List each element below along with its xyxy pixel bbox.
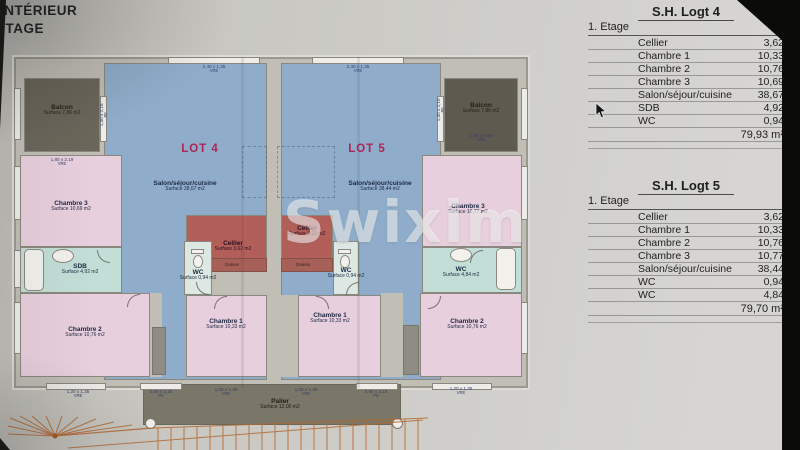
room-surface: Surface 10,69 m2 bbox=[51, 207, 90, 213]
room-label-wc-lot4: WC Surface 0,94 m2 bbox=[180, 269, 217, 282]
table-end-rule bbox=[588, 316, 784, 323]
lot5-title: LOT 5 bbox=[348, 143, 386, 155]
duct-shaft-lot4 bbox=[152, 327, 166, 375]
room-surface: Surface 3,62 m2 bbox=[215, 247, 252, 253]
table-row: Chambre 110,33 bbox=[588, 50, 784, 63]
room-label-chambre1-lot4: Chambre 1 Surface 10,33 m2 bbox=[206, 318, 245, 331]
window-opening bbox=[521, 302, 528, 354]
table-row: SDB4,92 bbox=[588, 102, 784, 115]
window-opening bbox=[14, 302, 21, 354]
dimension-label: 0,90 x 2,15PE bbox=[356, 389, 396, 399]
room-surface: Surface 4,84 m2 bbox=[443, 273, 480, 279]
wall-strip bbox=[281, 295, 298, 377]
table-row: Chambre 310,69 bbox=[588, 76, 784, 89]
room-label-sdb-lot4: SDB Surface 4,92 m2 bbox=[62, 263, 99, 276]
photo-corner-shadow bbox=[0, 0, 6, 130]
table-floor-row: 1. Etage bbox=[588, 195, 784, 210]
room-surface: Surface 10,33 m2 bbox=[310, 319, 349, 325]
table-row: Chambre 210,76 bbox=[588, 63, 784, 76]
room-label-chambre1-lot5: Chambre 1 Surface 10,33 m2 bbox=[310, 312, 349, 325]
sink-symbol bbox=[52, 249, 74, 263]
room-label-wc-bathroom-lot5: WC Surface 4,84 m2 bbox=[443, 266, 480, 279]
dimension-label: 1,20 x 1,35VRE bbox=[441, 386, 481, 396]
room-label-palier: Palier Surface 12,00 m2 bbox=[260, 398, 299, 411]
room-label-balcon-lot4: Balcon Surface 7,86 m2 bbox=[44, 104, 81, 117]
table-row: Chambre 210,76 bbox=[588, 237, 784, 250]
table-total-row: 79,93 m² bbox=[588, 128, 784, 142]
swixim-watermark: Swixim bbox=[283, 188, 528, 256]
dimension-label: 0,90 x 2,15PE bbox=[141, 389, 181, 399]
window-opening bbox=[168, 57, 260, 64]
dimension-label: 1,20 x 1,35VRE bbox=[58, 389, 98, 399]
room-surface: Surface 10,76 m2 bbox=[447, 325, 486, 331]
room-chambre1-lot5 bbox=[298, 295, 381, 377]
dimension-label: 1,20 x 1,35VRE bbox=[206, 387, 246, 397]
room-surface: Surface 4,92 m2 bbox=[62, 270, 99, 276]
window-opening bbox=[521, 88, 528, 140]
table-row: WC0,94 bbox=[588, 115, 784, 128]
table-row: Salon/séjour/cuisine38,67 bbox=[588, 89, 784, 102]
table-row: Salon/séjour/cuisine38,44 bbox=[588, 263, 784, 276]
gaines-label: Gaines bbox=[225, 262, 239, 267]
table-end-rule bbox=[588, 142, 784, 149]
table-total-row: 79,70 m² bbox=[588, 302, 784, 316]
room-surface: Surface 0,94 m2 bbox=[180, 276, 217, 282]
room-label-chambre2-lot5: Chambre 2 Surface 10,76 m2 bbox=[447, 318, 486, 331]
bathtub-symbol bbox=[24, 249, 44, 291]
photo-edge-band bbox=[782, 0, 800, 450]
window-opening bbox=[14, 166, 21, 220]
page-title-line2: ÉTAGE bbox=[0, 21, 44, 36]
corridor-patch-lot4 bbox=[212, 272, 267, 295]
room-surface: Surface 10,76 m2 bbox=[65, 333, 104, 339]
toilet-tank-symbol bbox=[191, 249, 204, 254]
table-floor-row: 1. Etage bbox=[588, 21, 784, 36]
table-row: Chambre 310,77 bbox=[588, 250, 784, 263]
table-row: Chambre 110,33 bbox=[588, 224, 784, 237]
room-label-chambre3-lot4: Chambre 3 Surface 10,69 m2 bbox=[51, 200, 90, 213]
stair-newel-post bbox=[53, 434, 58, 439]
room-surface: Surface 7,86 m2 bbox=[44, 111, 81, 117]
photo-crease-artifact bbox=[241, 57, 244, 388]
table-row: Cellier3,62 bbox=[588, 211, 784, 224]
surface-table-logt4: S.H. Logt 4 1. Etage Cellier3,62 Chambre… bbox=[588, 4, 784, 149]
lot4-title: LOT 4 bbox=[181, 143, 219, 155]
room-label-cellier-lot4: Cellier Surface 3,62 m2 bbox=[215, 240, 252, 253]
mouse-cursor-icon bbox=[595, 102, 607, 120]
window-opening bbox=[14, 250, 21, 288]
photographed-floor-plan-page: INTÉRIEUR ÉTAGE bbox=[0, 0, 800, 450]
window-opening bbox=[14, 88, 21, 140]
dimension-label: 1,00 x 0,95VRE bbox=[461, 133, 501, 143]
page-title-line1: INTÉRIEUR bbox=[0, 3, 77, 18]
room-label-chambre2-lot4: Chambre 2 Surface 10,76 m2 bbox=[65, 326, 104, 339]
room-surface: Surface 38,67 m2 bbox=[153, 187, 216, 193]
duct-shaft-lot5 bbox=[403, 325, 419, 375]
dimension-label: 1,80 x 2,19VRE bbox=[42, 157, 82, 167]
room-surface: Surface 10,33 m2 bbox=[206, 325, 245, 331]
table-row: WC4,84 bbox=[588, 289, 784, 302]
dimension-label: 2,40 x 1,35VRE bbox=[194, 64, 234, 74]
dimension-label: 1,40 x 2,15PF bbox=[436, 90, 446, 130]
gaines-label: Gaines bbox=[296, 262, 310, 267]
surface-table-logt5: S.H. Logt 5 1. Etage Cellier3,62 Chambre… bbox=[588, 178, 784, 323]
room-label-balcon-lot5: Balcon Surface 7,86 m2 bbox=[463, 102, 500, 115]
wall-strip bbox=[381, 293, 403, 377]
table-row: WC0,94 bbox=[588, 276, 784, 289]
room-surface: Surface 12,00 m2 bbox=[260, 405, 299, 411]
dimension-label: 1,40 x 2,15PF bbox=[99, 95, 109, 135]
table-title: S.H. Logt 5 bbox=[588, 178, 784, 193]
toilet-symbol bbox=[193, 255, 203, 268]
room-label-salon-lot4: Salon/séjour/cuisine Surface 38,67 m2 bbox=[153, 180, 216, 193]
dashed-outline bbox=[242, 146, 267, 198]
table-row: Cellier3,62 bbox=[588, 37, 784, 50]
dimension-label: 1,20 x 1,35VRE bbox=[286, 387, 326, 397]
room-surface: Surface 7,86 m2 bbox=[463, 109, 500, 115]
staircase-drawing bbox=[8, 416, 438, 450]
